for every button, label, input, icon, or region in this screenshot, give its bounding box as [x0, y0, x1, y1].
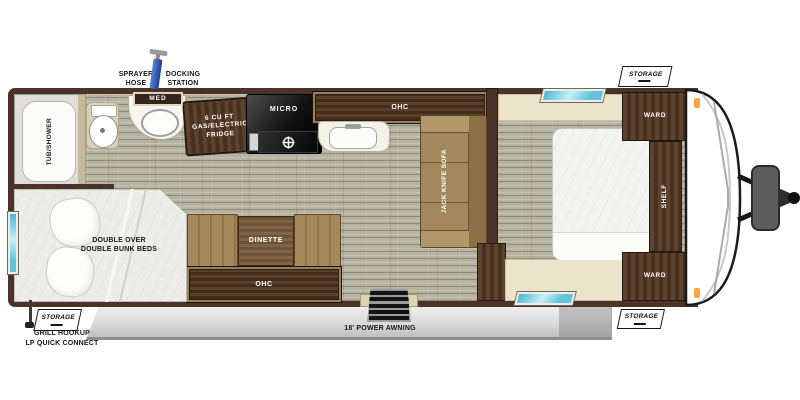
tub-shower-enclosure: TUB/SHOWER — [14, 94, 86, 186]
power-awning — [86, 303, 612, 340]
flap-handle — [638, 80, 650, 82]
sofa-armrest-bottom — [421, 230, 469, 247]
sofa-back — [468, 116, 486, 247]
awning-label: 18' POWER AWNING — [332, 324, 428, 333]
toilet — [86, 102, 119, 149]
toilet-drain — [100, 128, 105, 133]
storage-flap-top: STORAGE — [618, 66, 672, 87]
dinette-label: DINETTE — [249, 236, 283, 245]
med-cabinet: MED — [133, 92, 183, 106]
kitchen-faucet-icon — [345, 124, 361, 129]
window-bottom-wall — [514, 292, 575, 305]
front-cap — [650, 80, 800, 320]
flap-handle — [50, 324, 62, 326]
storage-top-label: STORAGE — [628, 71, 663, 79]
tub-shower-label: TUB/SHOWER — [46, 118, 53, 165]
microwave: MICRO — [246, 94, 322, 154]
propane-cover — [752, 166, 779, 230]
sofa-end-cabinet — [477, 243, 506, 301]
burner-icon — [281, 135, 296, 150]
micro-label: MICRO — [247, 105, 321, 114]
bathroom-sink — [141, 109, 179, 137]
bunk-bed: DOUBLE OVER DOUBLE BUNK BEDS — [14, 189, 187, 302]
clearance-light — [694, 288, 700, 298]
floorplan-canvas: 18' POWER AWNING TUB/SHOWER MED 6 CU FT … — [0, 0, 800, 400]
cooktop — [258, 131, 318, 153]
dinette-bench-left — [187, 214, 238, 268]
fridge-label: 6 CU FT GAS/ELECTRIC FRIDGE — [191, 112, 248, 141]
awning-end-shade — [559, 304, 611, 337]
lp-quick-connect-icon — [29, 300, 32, 324]
kitchen-counter — [318, 121, 390, 152]
flap-handle — [634, 323, 646, 325]
jack-knife-sofa: JACK KNIFE SOFA — [420, 115, 487, 248]
storage-front-label: STORAGE — [624, 313, 659, 321]
tub-shower: TUB/SHOWER — [22, 101, 76, 182]
dinette-table: DINETTE — [238, 216, 294, 266]
bedroom-mattress — [552, 128, 654, 260]
dinette-bench-right — [294, 214, 341, 268]
lp-quick-connect-icon — [25, 322, 34, 328]
storage-flap-rear: STORAGE — [33, 309, 82, 331]
window-rear-side — [8, 212, 18, 274]
ohc-dinette-label: OHC — [255, 280, 272, 289]
sofa-armrest-top — [421, 116, 469, 133]
clearance-light — [694, 98, 700, 108]
ohc-kitchen-label: OHC — [391, 103, 408, 112]
storage-flap-front: STORAGE — [617, 309, 665, 329]
bunk-bed-label: DOUBLE OVER DOUBLE BUNK BEDS — [60, 236, 178, 254]
med-cabinet-label: MED — [149, 95, 166, 103]
grill-hookup-label: GRILL HOOKUP LP QUICK CONNECT — [0, 329, 124, 349]
overhead-cabinet-dinette: OHC — [186, 266, 342, 303]
front-cap-shell — [686, 90, 740, 305]
tub-shower-trim — [78, 95, 85, 185]
half-wall — [486, 88, 498, 248]
hitch-ball — [788, 192, 800, 204]
sofa-label: JACK KNIFE SOFA — [441, 149, 449, 214]
kitchen-sink — [329, 127, 377, 149]
storage-rear-label: STORAGE — [40, 314, 75, 322]
window-top-wall — [540, 89, 605, 102]
entry-steps — [367, 289, 411, 322]
